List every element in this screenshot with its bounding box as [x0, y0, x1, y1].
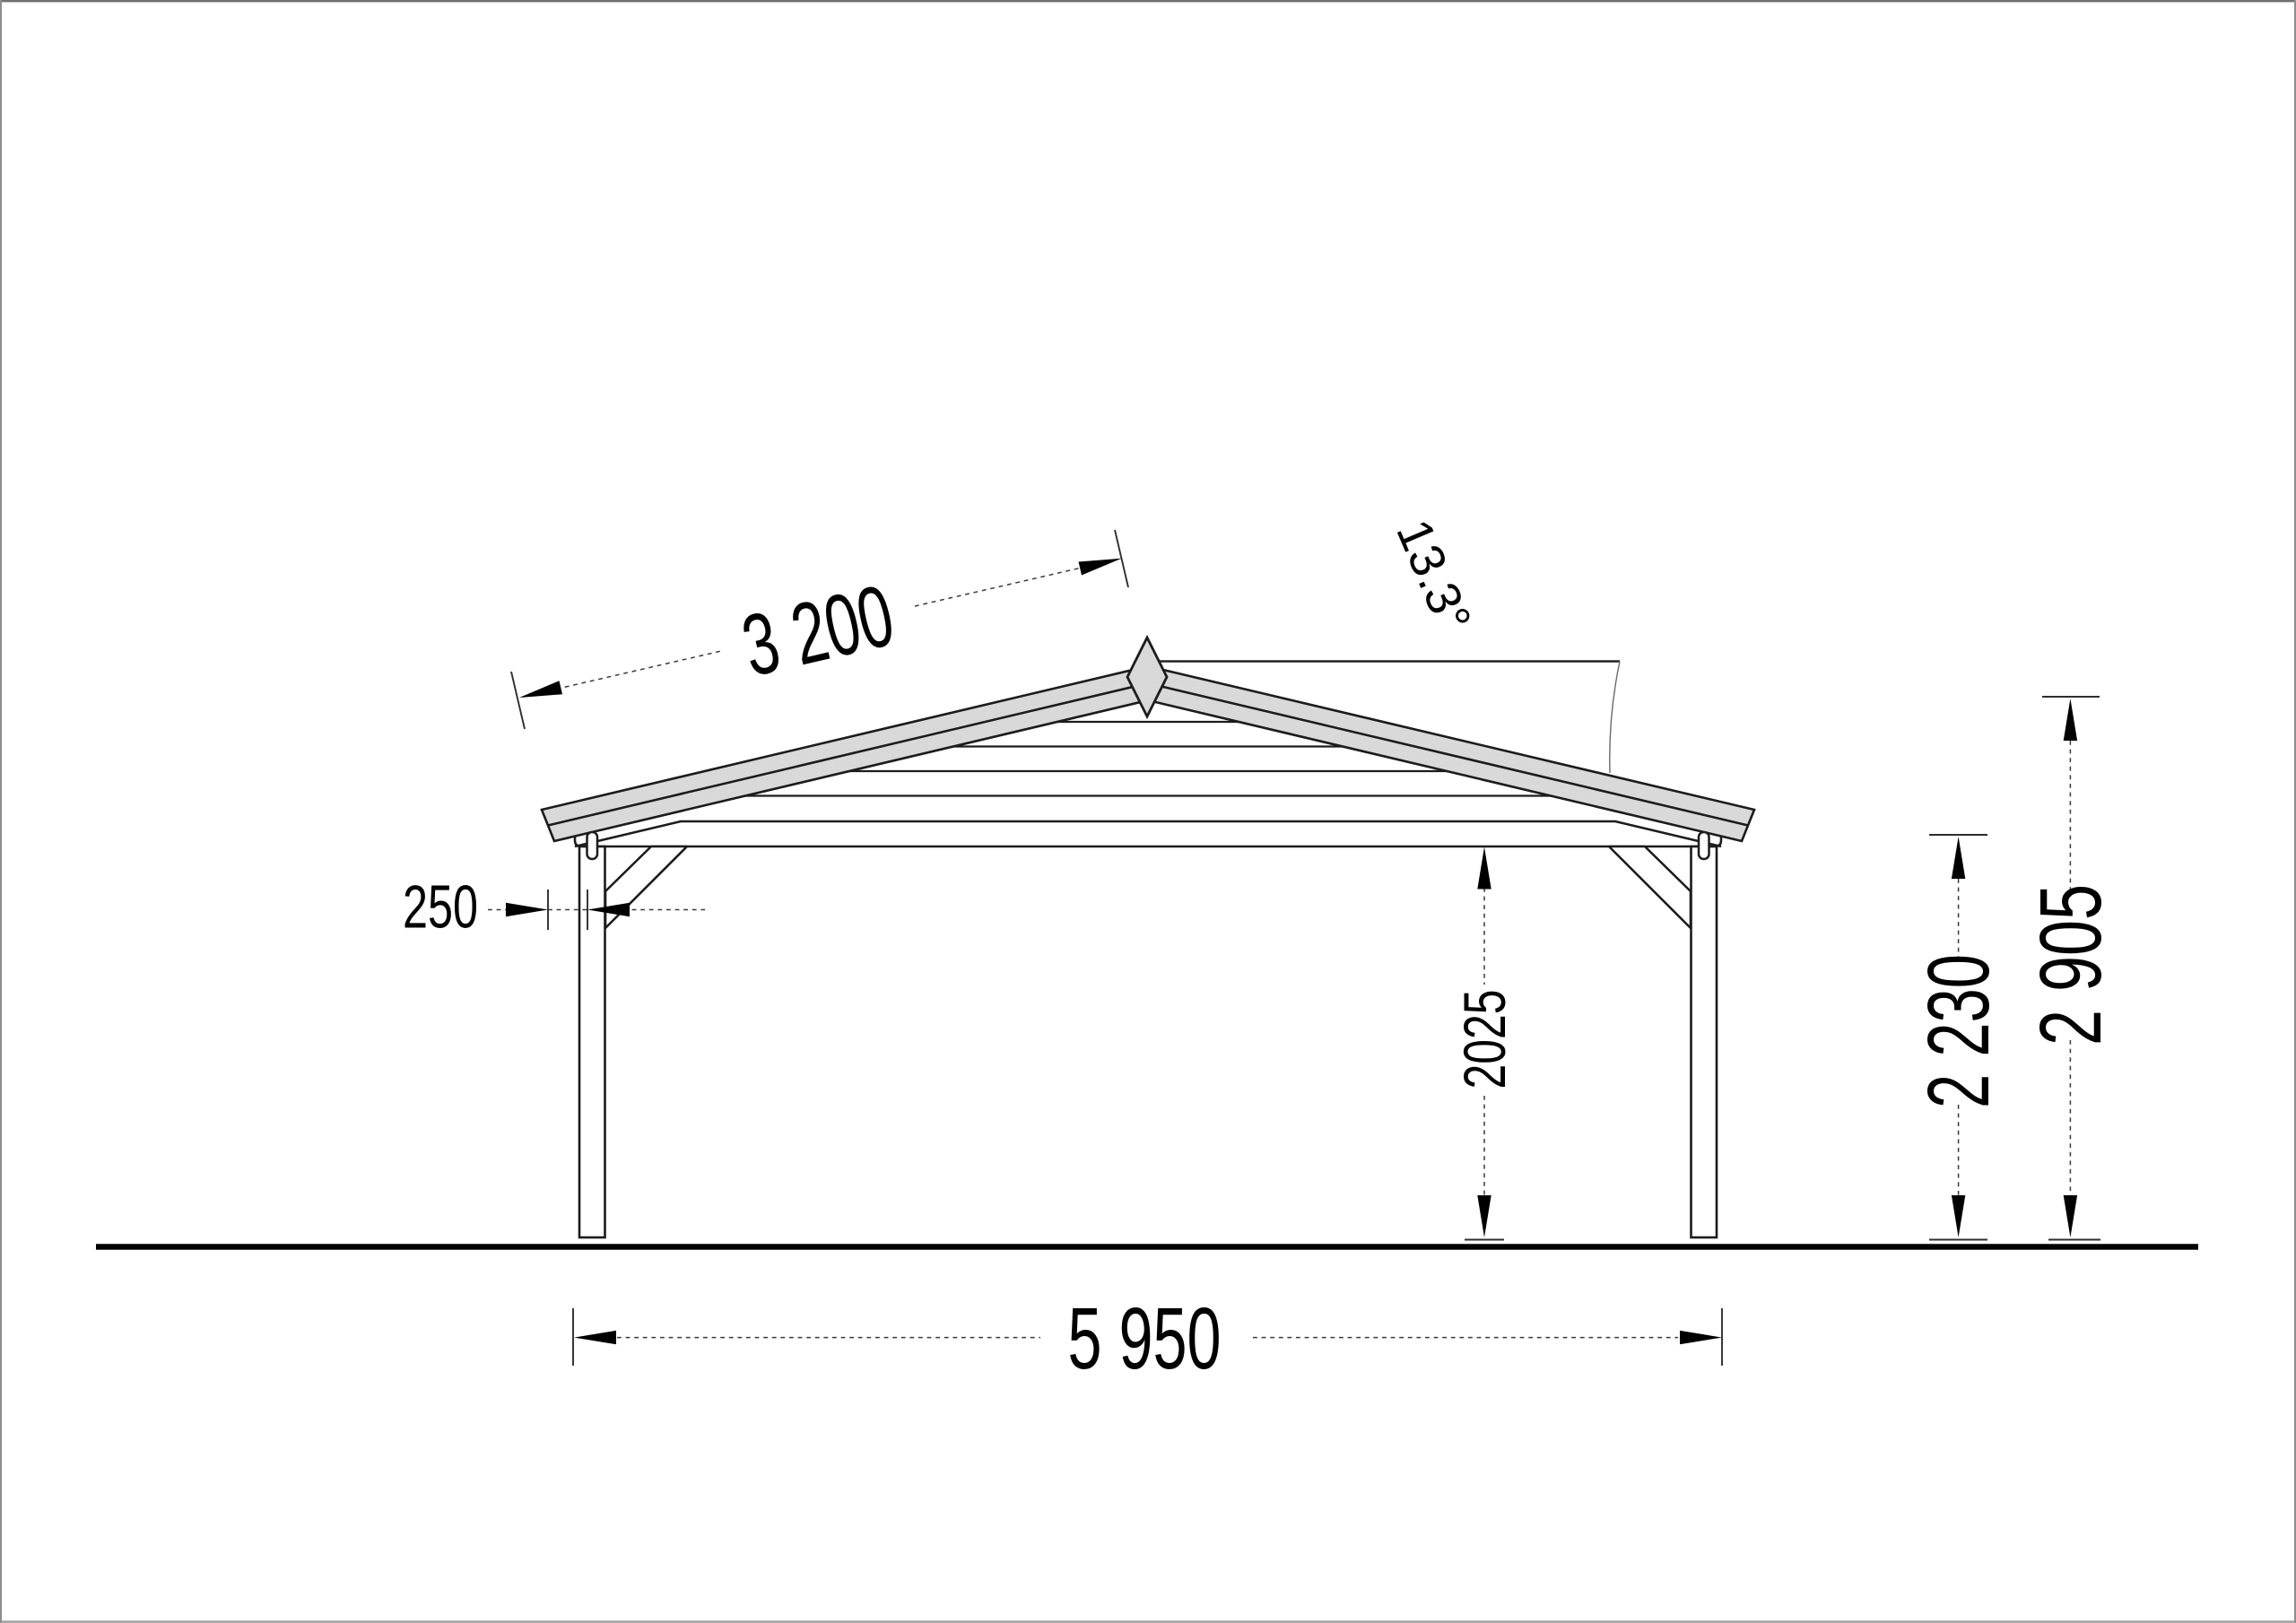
svg-text:250: 250 [403, 873, 478, 942]
svg-text:2025: 2025 [1451, 990, 1518, 1089]
svg-text:13.3°: 13.3° [1386, 511, 1482, 639]
svg-text:5 950: 5 950 [1068, 1289, 1222, 1387]
svg-text:3 200: 3 200 [734, 566, 902, 695]
svg-text:2 905: 2 905 [2022, 884, 2119, 1046]
svg-text:2 230: 2 230 [1909, 954, 2007, 1108]
